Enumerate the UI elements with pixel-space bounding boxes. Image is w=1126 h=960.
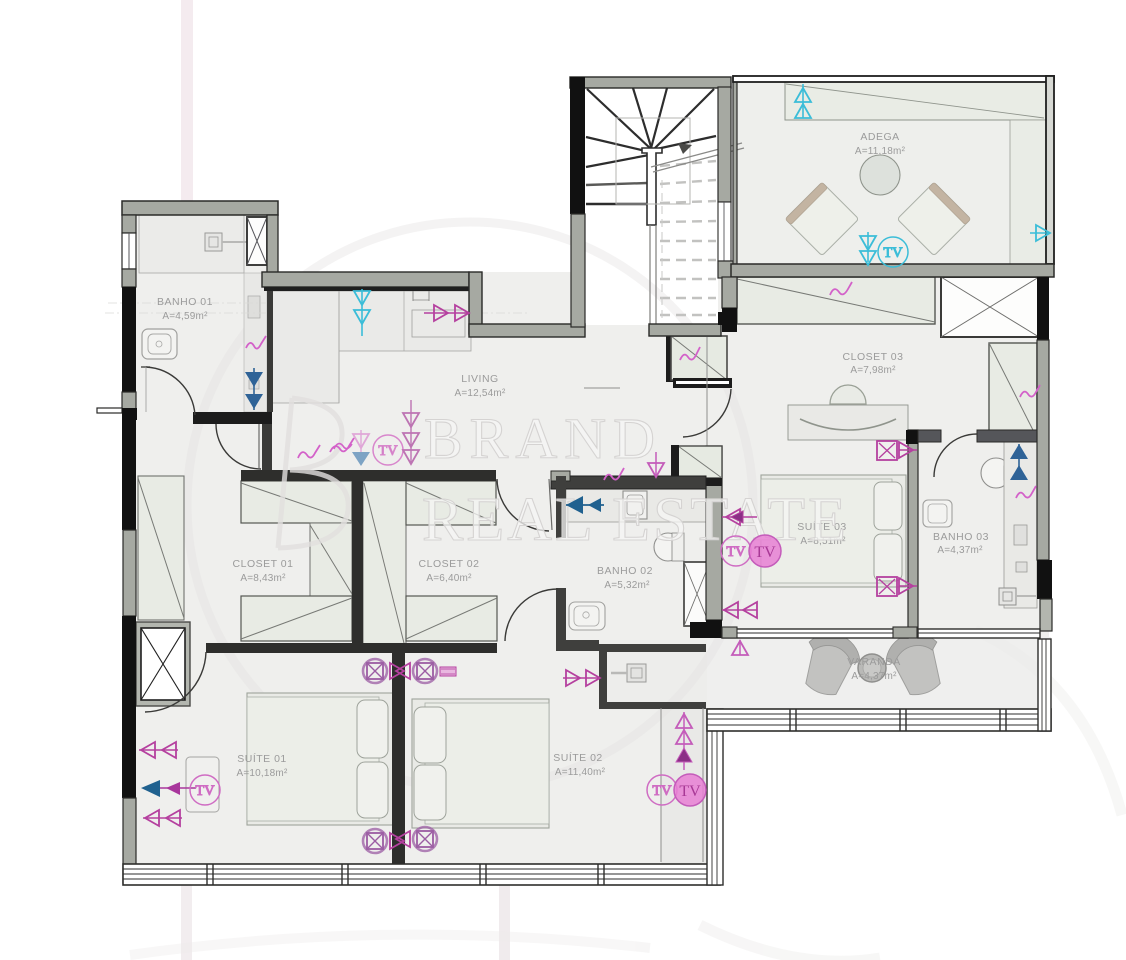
svg-text:A=11,40m²: A=11,40m² xyxy=(555,767,606,778)
svg-text:A=4,37m²: A=4,37m² xyxy=(851,671,897,682)
svg-text:A=7,98m²: A=7,98m² xyxy=(850,365,896,376)
svg-text:A=4,37m²: A=4,37m² xyxy=(937,545,983,556)
svg-text:CLOSET 01: CLOSET 01 xyxy=(233,558,294,570)
svg-text:A=4,59m²: A=4,59m² xyxy=(162,311,208,322)
svg-text:BANHO 02: BANHO 02 xyxy=(597,565,653,577)
svg-text:REAL ESTATE: REAL ESTATE xyxy=(422,486,849,554)
svg-text:A=5,32m²: A=5,32m² xyxy=(604,580,650,591)
svg-text:CLOSET 03: CLOSET 03 xyxy=(843,351,904,363)
svg-text:TV: TV xyxy=(679,783,701,800)
svg-text:A=8,43m²: A=8,43m² xyxy=(240,573,286,584)
svg-text:A=10,18m²: A=10,18m² xyxy=(237,768,288,779)
svg-text:LIVING: LIVING xyxy=(461,373,498,385)
svg-text:BANHO 03: BANHO 03 xyxy=(933,531,989,543)
svg-text:A=12,54m²: A=12,54m² xyxy=(455,388,506,399)
svg-text:A=11,18m²: A=11,18m² xyxy=(855,146,906,157)
svg-text:ADEGA: ADEGA xyxy=(860,131,899,143)
svg-text:TV: TV xyxy=(754,544,776,561)
svg-text:CLOSET 02: CLOSET 02 xyxy=(419,558,480,570)
svg-text:SUÍTE 02: SUÍTE 02 xyxy=(553,751,603,764)
svg-text:BANHO 01: BANHO 01 xyxy=(157,296,213,308)
svg-text:SUÍTE 01: SUÍTE 01 xyxy=(237,752,287,765)
svg-text:A=6,40m²: A=6,40m² xyxy=(426,573,472,584)
svg-text:BRAND: BRAND xyxy=(424,406,662,471)
svg-text:VARANDA: VARANDA xyxy=(847,656,900,668)
